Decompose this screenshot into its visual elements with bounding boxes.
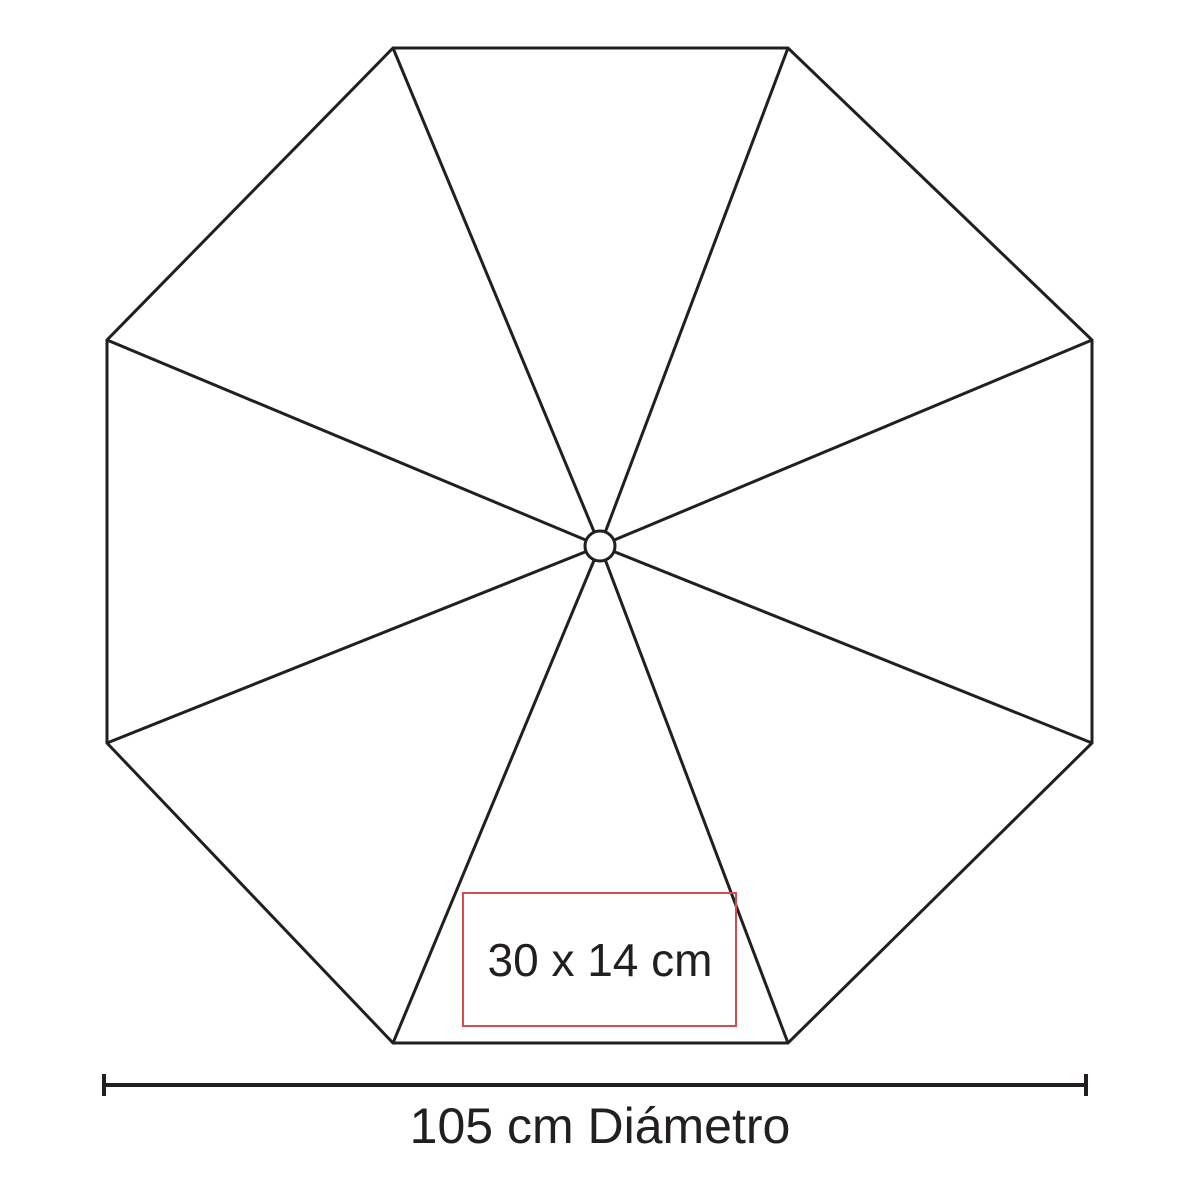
imprint-area-label: 30 x 14 cm (488, 934, 713, 986)
center-hub-circle (585, 531, 615, 561)
diagram-canvas: 30 x 14 cm 105 cm Diámetro (0, 0, 1200, 1200)
rib-line-top-right (600, 48, 788, 546)
diameter-dimension-line (104, 1074, 1086, 1096)
diameter-label: 105 cm Diámetro (410, 1098, 791, 1154)
rib-line-left-lower (107, 546, 600, 743)
rib-line-right-upper (600, 340, 1092, 546)
rib-line-right-lower (600, 546, 1092, 743)
umbrella-dimension-diagram: 30 x 14 cm 105 cm Diámetro (0, 0, 1200, 1200)
